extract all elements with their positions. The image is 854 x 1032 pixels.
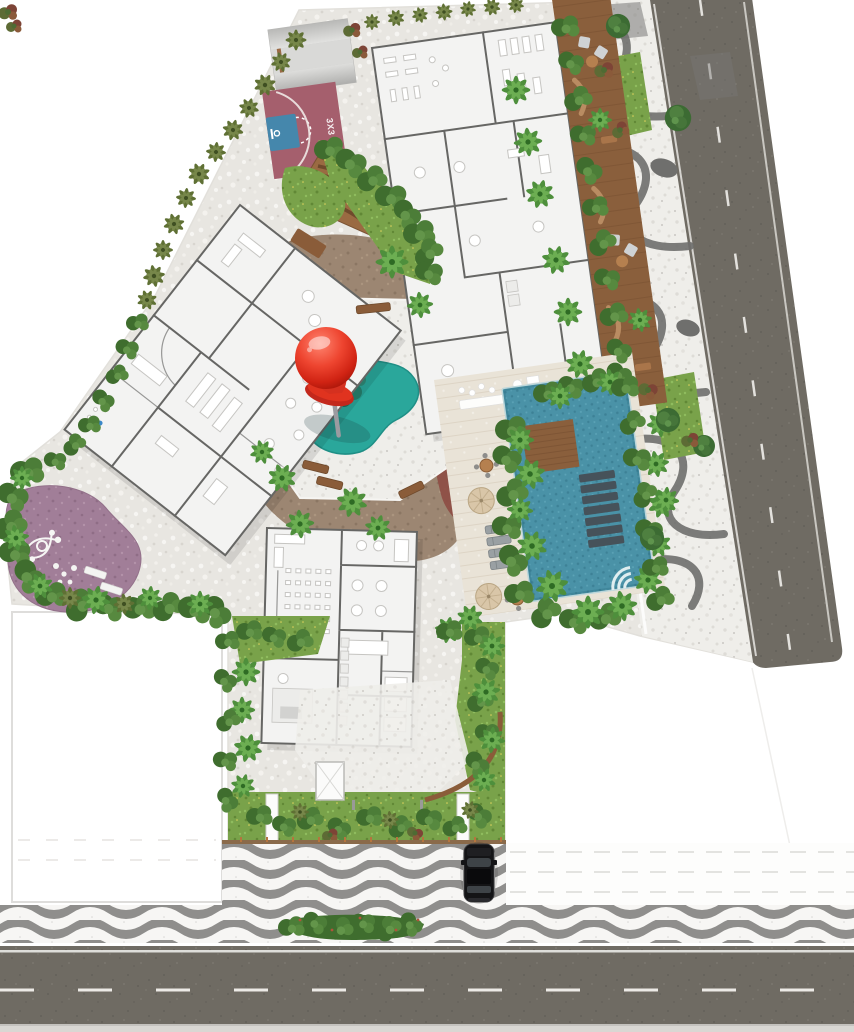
neighbor-parcel-left [12, 612, 222, 902]
copacabana-sidewalk-lower [0, 905, 854, 945]
planter-edge [222, 840, 506, 844]
site-plan-canvas: 3X3 [0, 0, 854, 1032]
far-sidewalk [0, 1026, 854, 1032]
street-road [0, 946, 854, 1032]
driveway [506, 843, 854, 905]
gatehouse [316, 762, 344, 800]
car [460, 842, 498, 904]
car-windshield [467, 858, 491, 867]
site-plan-image: 3X3 [0, 0, 854, 1032]
